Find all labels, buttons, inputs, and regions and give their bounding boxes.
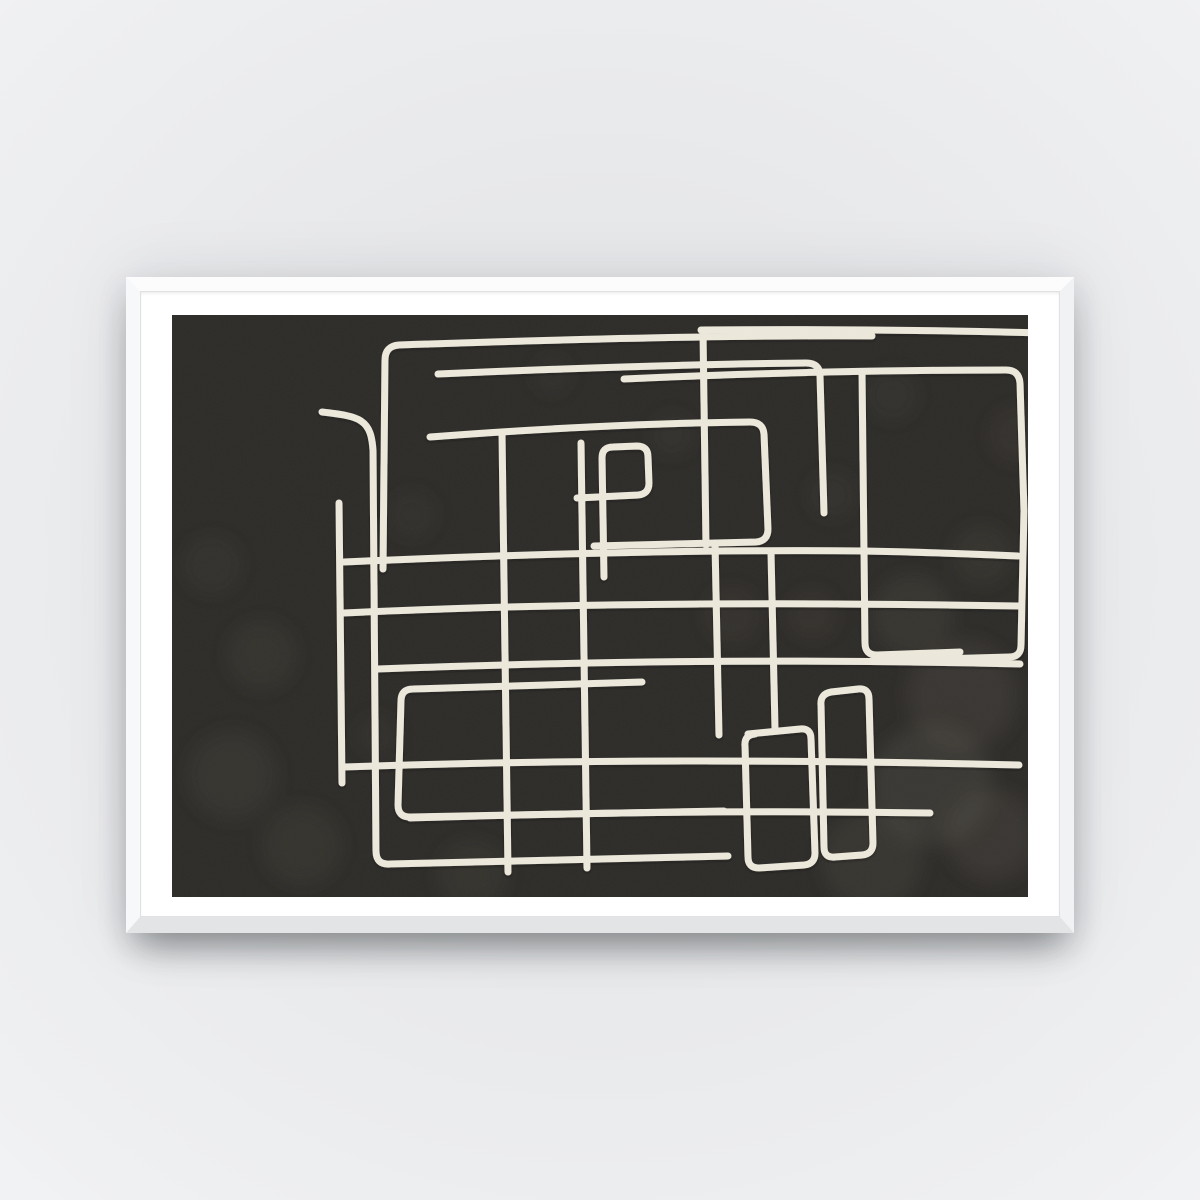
grain-overlay [172,315,1028,897]
maze-line-art [172,315,1028,897]
wall-background [0,0,1200,1200]
poster-frame [126,277,1074,933]
poster-artwork [172,315,1028,897]
